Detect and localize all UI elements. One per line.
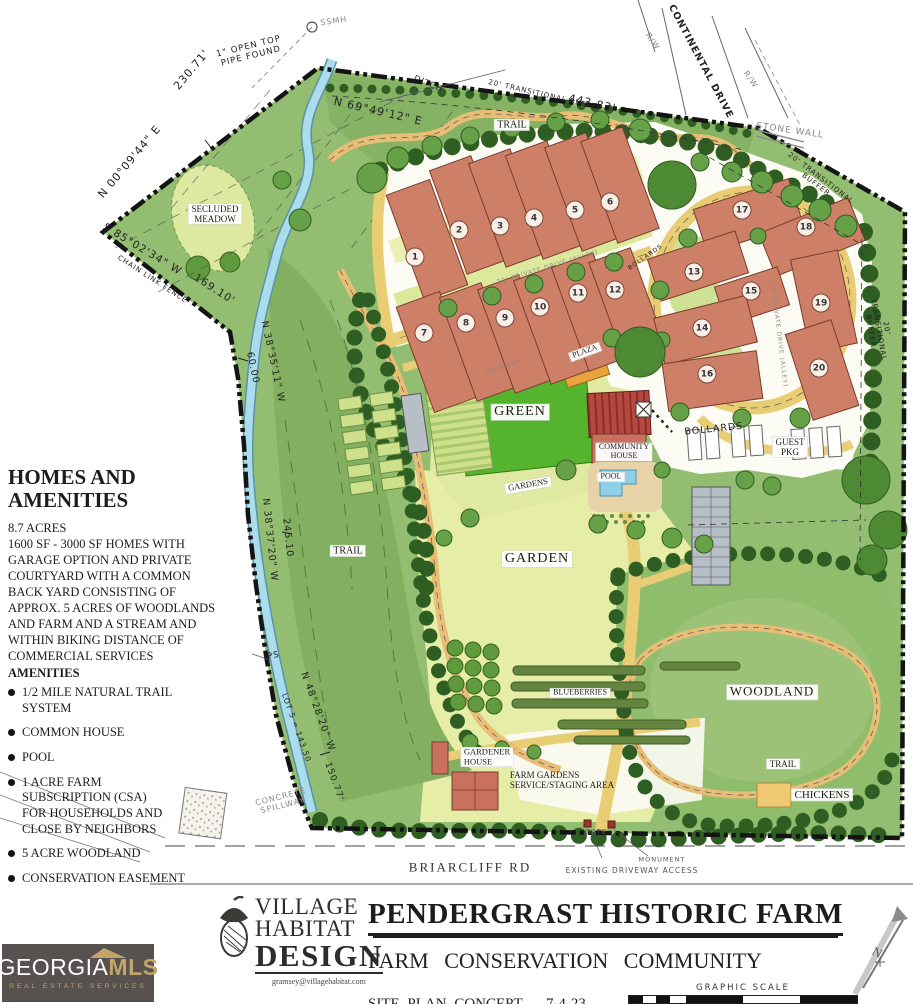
house-number-1: 1 bbox=[406, 248, 425, 267]
house-number-20: 20 bbox=[810, 359, 829, 378]
vhd-line1: VILLAGE bbox=[255, 896, 383, 918]
house-number-12: 12 bbox=[606, 281, 625, 300]
house-number-17: 17 bbox=[733, 201, 752, 220]
house-number-11: 11 bbox=[569, 284, 588, 303]
garden-label: GARDEN bbox=[502, 551, 572, 567]
title-block: GEORGIAMLS REAL ESTATE SERVICES VILLAGE … bbox=[0, 890, 913, 1004]
gate-label: GATE bbox=[585, 829, 607, 837]
trail-left-label: TRAIL bbox=[330, 545, 365, 556]
house-number-19: 19 bbox=[812, 294, 831, 313]
farm-gardens-label: FARM GARDENS SERVICE/STAGING AREA bbox=[510, 770, 614, 790]
georgia-mls-logo: GEORGIAMLS REAL ESTATE SERVICES bbox=[2, 944, 154, 1002]
vhd-line2: HABITAT bbox=[255, 918, 383, 940]
sheet-label: SITE PLAN CONCEPT bbox=[368, 996, 523, 1004]
pool-label: POOL bbox=[598, 473, 625, 482]
house-number-15: 15 bbox=[742, 282, 761, 301]
guest-pkg-label: GUEST PKG bbox=[773, 437, 808, 457]
vhd-line3: DESIGN bbox=[255, 940, 383, 974]
chickens-label: CHICKENS bbox=[791, 789, 852, 801]
house-number-13: 13 bbox=[685, 263, 704, 282]
house-number-3: 3 bbox=[491, 217, 510, 236]
house-number-4: 4 bbox=[525, 209, 544, 228]
existing-driveway-label: EXISTING DRIVEWAY ACCESS bbox=[566, 867, 699, 875]
house-number-14: 14 bbox=[693, 319, 712, 338]
panel-paragraph: 8.7 ACRES 1600 SF - 3000 SF HOMES WITH G… bbox=[8, 520, 224, 664]
graphic-scale: GRAPHIC SCALE 0 20 40 80 120 160 bbox=[628, 983, 858, 1004]
trail-top-label: TRAIL bbox=[494, 119, 529, 130]
village-habitat-logo: VILLAGE HABITAT DESIGN gramsey@villageha… bbox=[213, 896, 383, 986]
woodland-label: WOODLAND bbox=[727, 685, 818, 700]
sheet-date: 7-4-23 bbox=[546, 996, 586, 1004]
secluded-meadow-label: SECLUDED MEADOW bbox=[189, 204, 242, 224]
amenity-item: 1 ACRE FARM SUBSCRIPTION (CSA) FOR HOUSE… bbox=[8, 775, 224, 838]
amenity-item: CONSERVATION EASEMENT bbox=[8, 871, 224, 887]
mls-tagline: REAL ESTATE SERVICES bbox=[9, 983, 146, 990]
house-number-7: 7 bbox=[415, 324, 434, 343]
amenity-item: COMMON HOUSE bbox=[8, 725, 224, 741]
house-number-2: 2 bbox=[450, 221, 469, 240]
house-number-16: 16 bbox=[698, 365, 717, 384]
north-arrow-icon: N bbox=[845, 892, 913, 1002]
gardener-house-label: GARDENER HOUSE bbox=[461, 747, 513, 766]
monument-label: MONUMENT bbox=[639, 856, 686, 863]
amenity-item: POOL bbox=[8, 750, 224, 766]
house-number-10: 10 bbox=[531, 298, 550, 317]
parking-lot bbox=[692, 487, 730, 585]
blueberries-label: BLUEBERRIES bbox=[550, 689, 610, 698]
amenities-heading: AMENITIES bbox=[8, 666, 224, 681]
house-number-18: 18 bbox=[797, 218, 816, 237]
scale-bar bbox=[628, 995, 858, 1004]
trail-woodland-label: TRAIL bbox=[767, 759, 800, 769]
amenity-item: 5 ACRE WOODLAND bbox=[8, 846, 224, 862]
scale-caption: GRAPHIC SCALE bbox=[628, 983, 858, 993]
amenities-list: 1/2 MILE NATURAL TRAIL SYSTEM COMMON HOU… bbox=[8, 685, 224, 886]
project-title: PENDERGRAST HISTORIC FARM bbox=[368, 898, 843, 936]
house-number-9: 9 bbox=[496, 309, 515, 328]
panel-heading: HOMES AND AMENITIES bbox=[8, 466, 224, 512]
acorn-icon bbox=[213, 896, 255, 974]
green-label: GREEN bbox=[491, 404, 549, 420]
house-number-6: 6 bbox=[601, 193, 620, 212]
chickens-swatch bbox=[757, 783, 791, 807]
sheet-name: SITE PLAN CONCEPT 7-4-23 bbox=[368, 996, 586, 1004]
house-number-5: 5 bbox=[566, 201, 585, 220]
house-number-8: 8 bbox=[457, 314, 476, 333]
site-plan-sheet: SSMH 1" OPEN TOP PIPE FOUND N 69°49'12" … bbox=[0, 0, 913, 1004]
vhd-email: gramsey@villagehabitat.com bbox=[255, 977, 383, 986]
community-house-label: COMMUNITY HOUSE bbox=[596, 443, 652, 461]
homes-amenities-panel: HOMES AND AMENITIES 8.7 ACRES 1600 SF - … bbox=[8, 466, 224, 895]
mls-roof-icon bbox=[90, 948, 126, 958]
amenity-item: 1/2 MILE NATURAL TRAIL SYSTEM bbox=[8, 685, 224, 716]
briarcliff-rd-label: BRIARCLIFF RD bbox=[409, 861, 531, 876]
project-subtitle: FARM CONSERVATION COMMUNITY bbox=[368, 948, 868, 974]
